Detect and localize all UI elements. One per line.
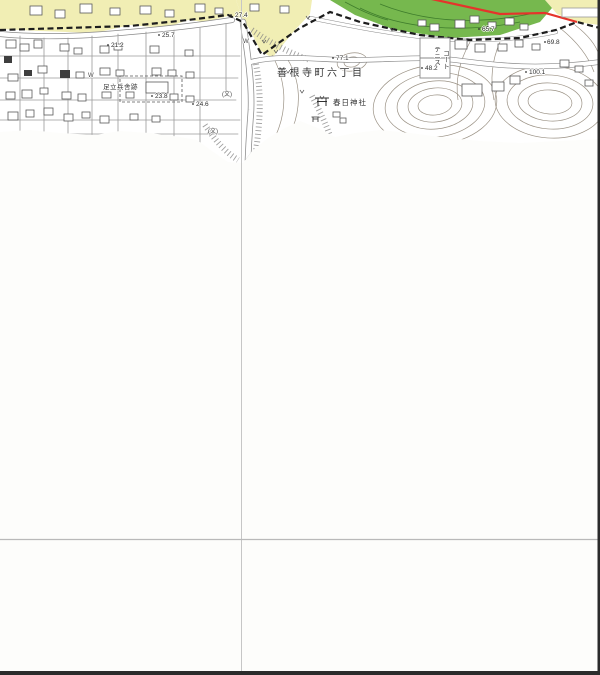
map-annotation-box [562,8,598,17]
tennis-court [420,38,450,78]
map-viewport[interactable]: 善根寺町六丁目春日神社足立兵舎跡テニスコート27.421.225.724.623… [0,0,600,675]
map-border-bottom [0,671,600,675]
map-image[interactable] [0,0,600,675]
